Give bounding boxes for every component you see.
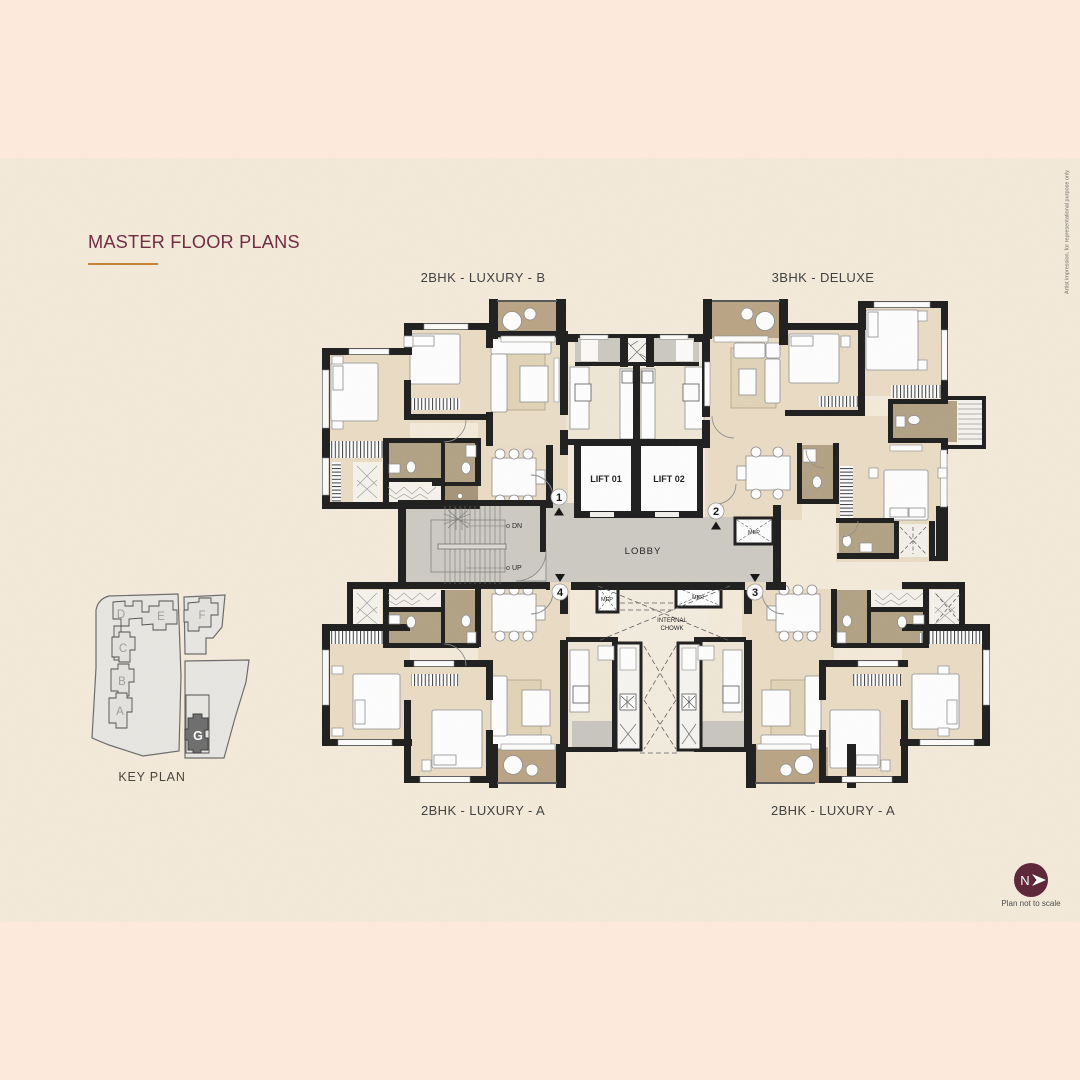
svg-text:N: N [1020, 873, 1029, 888]
svg-text:INTERNAL: INTERNAL [657, 618, 687, 624]
svg-text:4: 4 [557, 587, 564, 599]
svg-text:MEP: MEP [692, 595, 704, 601]
svg-text:LOBBY: LOBBY [625, 546, 662, 557]
svg-text:C: C [119, 643, 127, 655]
svg-text:MEP: MEP [748, 530, 760, 536]
svg-text:1: 1 [556, 492, 562, 504]
svg-text:DN: DN [512, 523, 522, 530]
svg-text:LIFT 02: LIFT 02 [653, 474, 685, 484]
svg-text:LIFT 01: LIFT 01 [590, 474, 622, 484]
svg-text:CHOWK: CHOWK [661, 626, 684, 632]
svg-text:UP: UP [512, 565, 522, 572]
svg-text:MEP: MEP [601, 597, 613, 603]
svg-text:2: 2 [713, 506, 719, 518]
svg-text:3: 3 [752, 587, 758, 599]
svg-text:A: A [116, 706, 124, 718]
svg-text:E: E [157, 611, 165, 623]
svg-text:B: B [118, 676, 126, 688]
svg-text:F: F [198, 610, 205, 622]
svg-text:D: D [117, 609, 125, 621]
svg-text:G: G [193, 729, 203, 743]
